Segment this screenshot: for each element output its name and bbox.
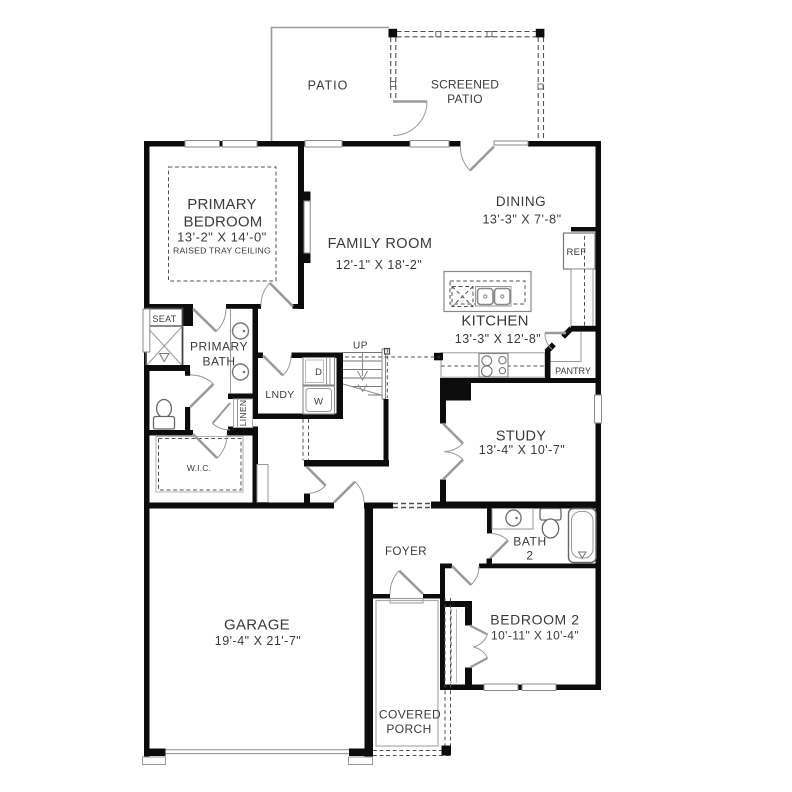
- svg-text:RAISED TRAY CEILING: RAISED TRAY CEILING: [173, 246, 271, 256]
- svg-text:KITCHEN: KITCHEN: [461, 313, 528, 330]
- svg-text:W: W: [314, 397, 323, 408]
- svg-text:BEDROOM: BEDROOM: [184, 214, 263, 231]
- svg-text:19'-4" X 21'-7": 19'-4" X 21'-7": [215, 634, 301, 648]
- svg-text:FOYER: FOYER: [385, 546, 427, 558]
- svg-text:GARAGE: GARAGE: [224, 617, 290, 634]
- svg-text:FAMILY ROOM: FAMILY ROOM: [328, 236, 433, 252]
- svg-text:PANTRY: PANTRY: [555, 366, 591, 376]
- svg-text:10'-11" X 10'-4": 10'-11" X 10'-4": [491, 629, 579, 643]
- svg-text:2: 2: [526, 549, 533, 563]
- svg-text:COVERED: COVERED: [379, 708, 441, 722]
- svg-text:12'-1" X 18'-2": 12'-1" X 18'-2": [336, 258, 422, 272]
- svg-text:DINING: DINING: [496, 194, 546, 209]
- svg-text:13'-2" X 14'-0": 13'-2" X 14'-0": [177, 230, 267, 245]
- svg-text:SCREENED: SCREENED: [431, 78, 499, 92]
- svg-text:BATH: BATH: [513, 535, 547, 549]
- svg-text:13'-3" X 7'-8": 13'-3" X 7'-8": [482, 213, 561, 227]
- svg-text:LNDY: LNDY: [265, 389, 294, 401]
- svg-text:W.I.C.: W.I.C.: [187, 463, 211, 473]
- svg-text:13'-4" X 10'-7": 13'-4" X 10'-7": [479, 443, 565, 457]
- svg-text:PATIO: PATIO: [308, 79, 349, 93]
- svg-text:PATIO: PATIO: [447, 92, 483, 106]
- svg-text:BATH: BATH: [202, 355, 235, 369]
- svg-text:SEAT: SEAT: [152, 314, 176, 324]
- svg-text:13'-3" X 12'-8": 13'-3" X 12'-8": [455, 332, 541, 346]
- svg-text:PRIMARY: PRIMARY: [187, 196, 256, 213]
- svg-text:PRIMARY: PRIMARY: [190, 340, 248, 354]
- svg-text:UP: UP: [353, 341, 368, 352]
- svg-text:D: D: [315, 367, 322, 378]
- svg-text:REF: REF: [567, 247, 587, 258]
- svg-text:BEDROOM 2: BEDROOM 2: [490, 612, 579, 628]
- svg-text:PORCH: PORCH: [386, 722, 431, 736]
- svg-text:LINEN: LINEN: [238, 400, 248, 427]
